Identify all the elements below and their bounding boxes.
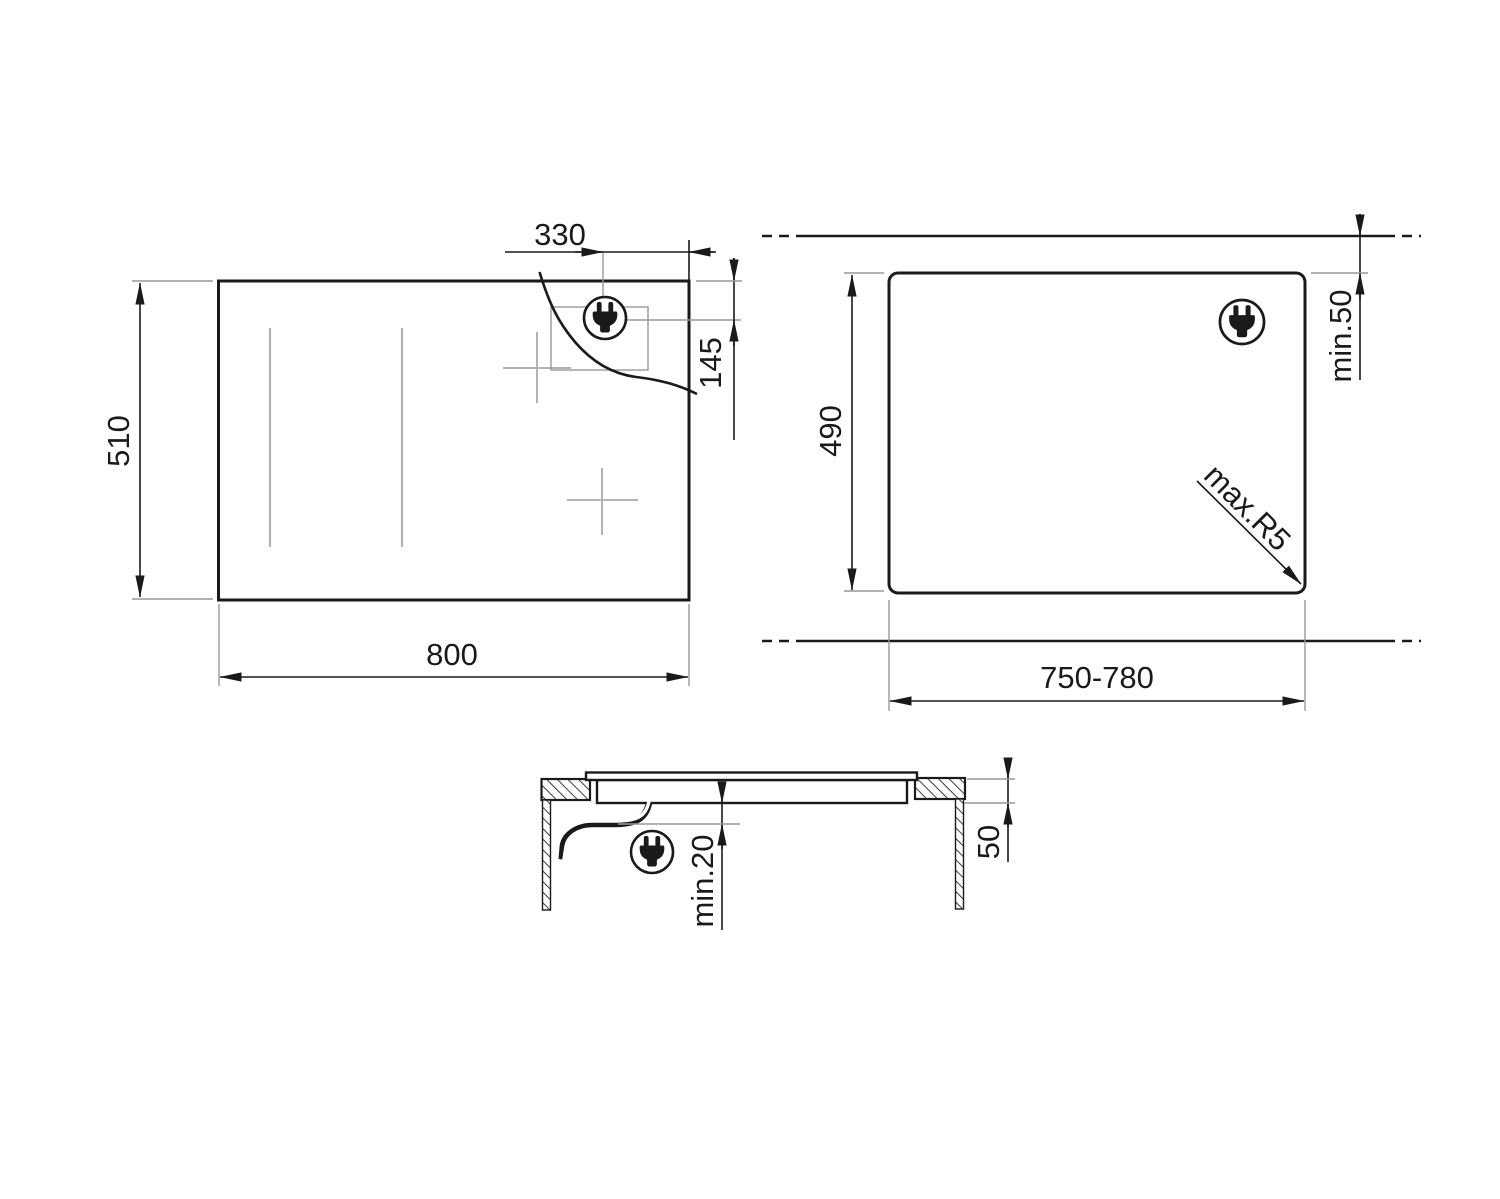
- worktop-section-hatch: [542, 779, 591, 800]
- dim-label-rear-clearance: min.50: [1323, 289, 1358, 382]
- dim-label-plug-offset-y: 145: [693, 337, 728, 389]
- section-view: min.20 50: [542, 759, 1016, 930]
- hob-body-section: [597, 780, 907, 803]
- glass-top-section: [586, 773, 917, 781]
- dim-label-clearance-below: min.20: [685, 834, 720, 927]
- cabinet-panel-hatch: [543, 800, 551, 910]
- dim-installation-depth: 50: [964, 759, 1015, 862]
- power-plug-icon: [584, 297, 626, 339]
- dim-label-hob-depth: 510: [101, 415, 136, 467]
- dim-rear-clearance: min.50: [1311, 214, 1368, 383]
- dim-cutout-depth: 490: [813, 273, 884, 591]
- installation-diagram: 330 145 510 800: [0, 0, 1500, 1199]
- dim-plug-offset-x: 330: [505, 217, 716, 287]
- dim-label-installation-depth: 50: [971, 825, 1006, 859]
- dim-plug-offset-y: 145: [693, 258, 742, 440]
- top-view: 330 145 510 800: [101, 217, 742, 686]
- dim-label-hob-width: 800: [426, 637, 478, 672]
- dim-hob-width: 800: [219, 604, 689, 686]
- cutout-view: min.50 490 750-780 max.R5: [762, 214, 1421, 711]
- dim-hob-depth: 510: [101, 281, 213, 599]
- dim-cutout-width: 750-780: [889, 600, 1305, 711]
- dim-label-cutout-depth: 490: [813, 405, 848, 457]
- power-plug-icon: [631, 831, 673, 873]
- cabinet-panel-hatch: [956, 799, 964, 909]
- power-plug-icon: [1220, 300, 1264, 344]
- worktop-section-hatch: [915, 778, 965, 799]
- dim-label-cutout-width: 750-780: [1040, 660, 1154, 695]
- dim-label-plug-offset-x: 330: [534, 217, 586, 252]
